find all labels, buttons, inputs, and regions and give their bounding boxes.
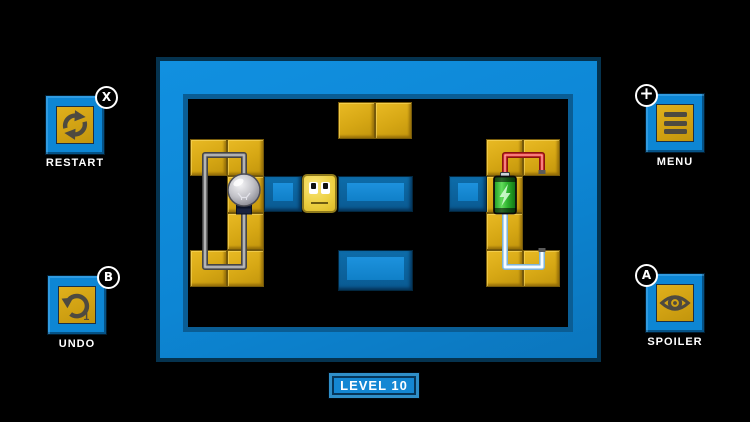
yellow-tile xyxy=(190,139,227,176)
socket-slot xyxy=(449,176,487,212)
gamepad-b-badge: B xyxy=(97,266,120,289)
socket-slot-face xyxy=(347,183,404,201)
yellow-tile xyxy=(227,250,264,287)
character-right-eye xyxy=(321,182,330,194)
socket-slot-face xyxy=(273,183,293,201)
socket-slot xyxy=(338,176,413,212)
socket-slot-face xyxy=(458,183,478,201)
gamepad-a-badge: A xyxy=(635,264,658,287)
character-mouth xyxy=(311,202,328,204)
socket-slot-face xyxy=(347,257,404,280)
yellow-tile xyxy=(486,139,523,176)
yellow-tile xyxy=(375,102,412,139)
character-left-pupil xyxy=(311,183,316,189)
yellow-tile xyxy=(338,102,375,139)
yellow-tile xyxy=(486,176,523,213)
tile-layer xyxy=(0,0,750,422)
yellow-tile xyxy=(486,213,523,250)
yellow-tile xyxy=(227,176,264,213)
player-character xyxy=(302,174,337,213)
yellow-tile xyxy=(486,250,523,287)
character-right-pupil xyxy=(323,183,328,189)
yellow-tile xyxy=(190,250,227,287)
gamepad-x-badge: X xyxy=(95,86,118,109)
yellow-tile xyxy=(523,139,560,176)
yellow-tile xyxy=(523,250,560,287)
socket-slot xyxy=(338,250,413,291)
yellow-tile xyxy=(227,139,264,176)
character-left-eye xyxy=(309,182,318,194)
yellow-tile xyxy=(227,213,264,250)
gamepad-plus-badge: + xyxy=(635,84,658,107)
game-screen: X RESTART 1 B UNDO + MENU A SPOILER xyxy=(0,0,750,422)
socket-slot xyxy=(264,176,302,212)
